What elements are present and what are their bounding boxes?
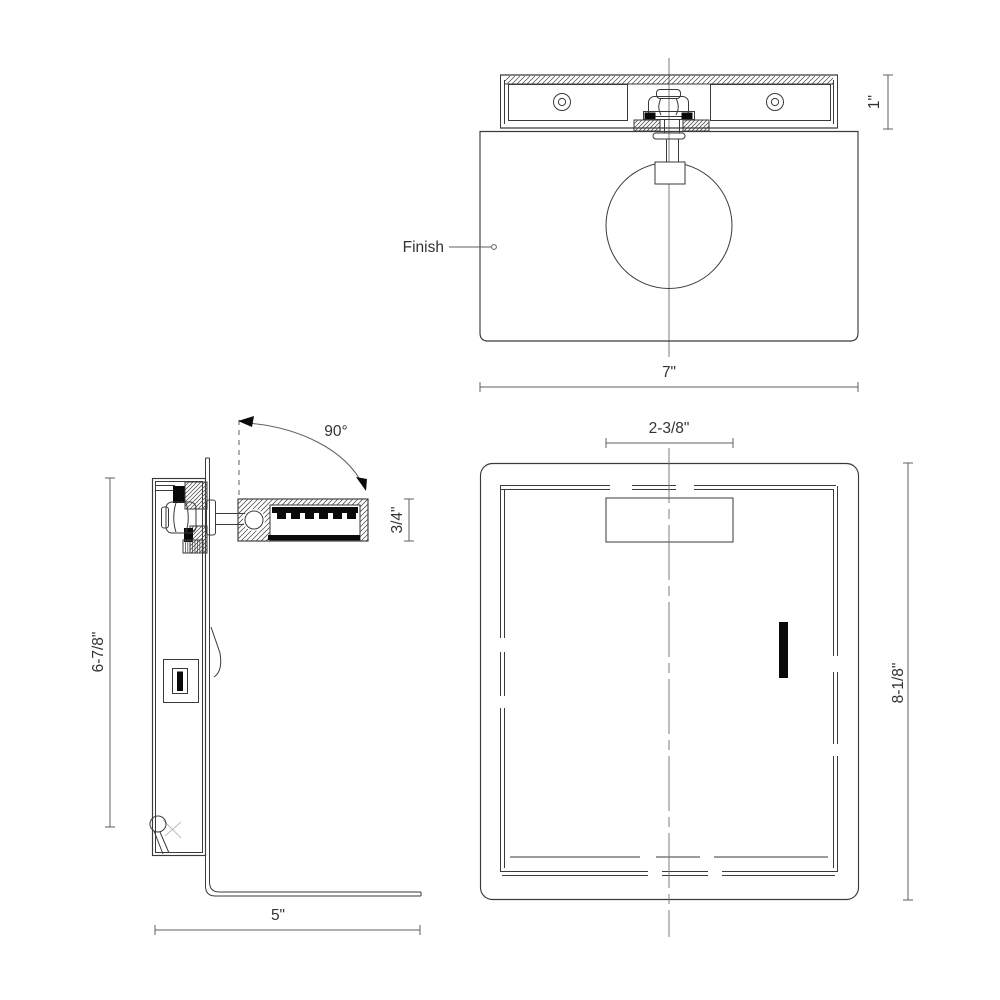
junction-box-outline	[606, 498, 733, 542]
switch-detail	[164, 660, 199, 703]
shade-fold-curve	[211, 627, 221, 677]
arm-thickness-dimension: 3/4"	[389, 499, 414, 541]
front-width-dimension: 7"	[480, 364, 858, 392]
wall-sconce-dimension-drawing: Finish 7" 1" 6-7/8"	[0, 0, 1000, 1000]
depth-dimension: 5"	[155, 907, 420, 935]
pivot-hardware	[162, 482, 247, 553]
side-height-dimension: 6-7/8"	[90, 478, 115, 827]
rear-outline	[481, 464, 859, 900]
backplate-enclosure	[153, 479, 206, 856]
finish-leader-dot	[492, 245, 497, 250]
left-mount-screw	[554, 94, 571, 111]
bolt-cap	[657, 90, 681, 99]
front-width-dim-text: 7"	[662, 364, 676, 381]
finish-callout: Finish	[403, 239, 497, 256]
mount-width-dimension: 2-3/8"	[606, 420, 733, 448]
light-arm-section	[238, 499, 368, 541]
led-board	[272, 507, 358, 513]
rear-switch-slot	[779, 622, 788, 678]
side-height-dim-text: 6-7/8"	[90, 632, 107, 673]
rear-height-dimension: 8-1/8"	[890, 463, 913, 900]
bracket-right-panel	[711, 85, 831, 121]
bracket-left-panel	[509, 85, 628, 121]
arc-arrow-down	[356, 477, 367, 491]
pivot-bolt-assembly	[634, 90, 709, 134]
switch-slot	[177, 672, 183, 692]
bottom-set-screw	[150, 816, 181, 854]
rotation-angle-text: 90°	[324, 423, 347, 440]
bracket-height-dimension: 1"	[866, 75, 893, 129]
technical-drawing-canvas: Finish 7" 1" 6-7/8"	[0, 0, 1000, 1000]
rear-view: 2-3/8" 8-1/8"	[481, 420, 914, 937]
rotation-indicator: 90°	[238, 416, 367, 497]
pivot-washer	[207, 500, 216, 535]
finish-label: Finish	[403, 239, 444, 256]
lamp-socket	[655, 162, 685, 184]
side-view: 6-7/8"	[90, 416, 421, 935]
arm-thickness-dim-text: 3/4"	[389, 506, 406, 533]
arc-arrow-left	[238, 416, 254, 427]
front-view: Finish 7" 1"	[403, 58, 893, 392]
depth-dim-text: 5"	[271, 907, 285, 924]
mount-width-dim-text: 2-3/8"	[649, 420, 690, 437]
diffuser-lens	[268, 535, 360, 540]
bracket-height-dim-text: 1"	[866, 95, 883, 109]
rear-height-dim-text: 8-1/8"	[890, 663, 907, 704]
right-mount-screw	[767, 94, 784, 111]
